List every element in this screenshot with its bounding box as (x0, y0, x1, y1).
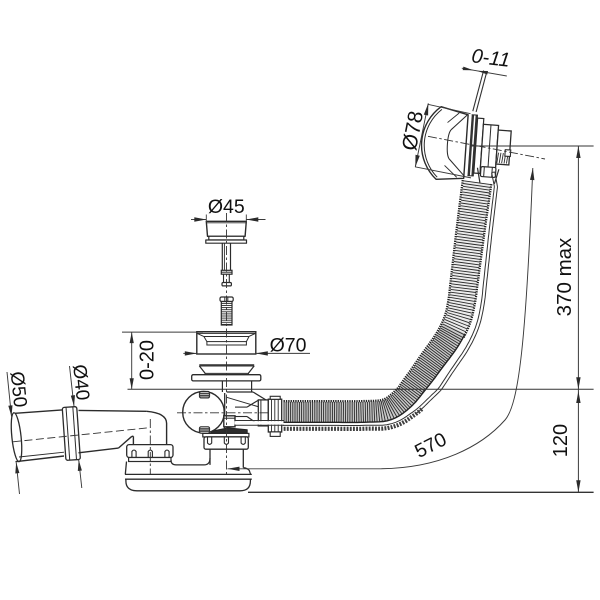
svg-text:Ø70: Ø70 (270, 335, 307, 357)
svg-text:0-11: 0-11 (470, 45, 511, 72)
svg-text:Ø50: Ø50 (6, 370, 31, 408)
svg-text:Ø40: Ø40 (68, 363, 93, 401)
svg-text:0-20: 0-20 (137, 340, 159, 380)
svg-text:370 max: 370 max (553, 237, 576, 316)
svg-text:120: 120 (550, 424, 572, 457)
